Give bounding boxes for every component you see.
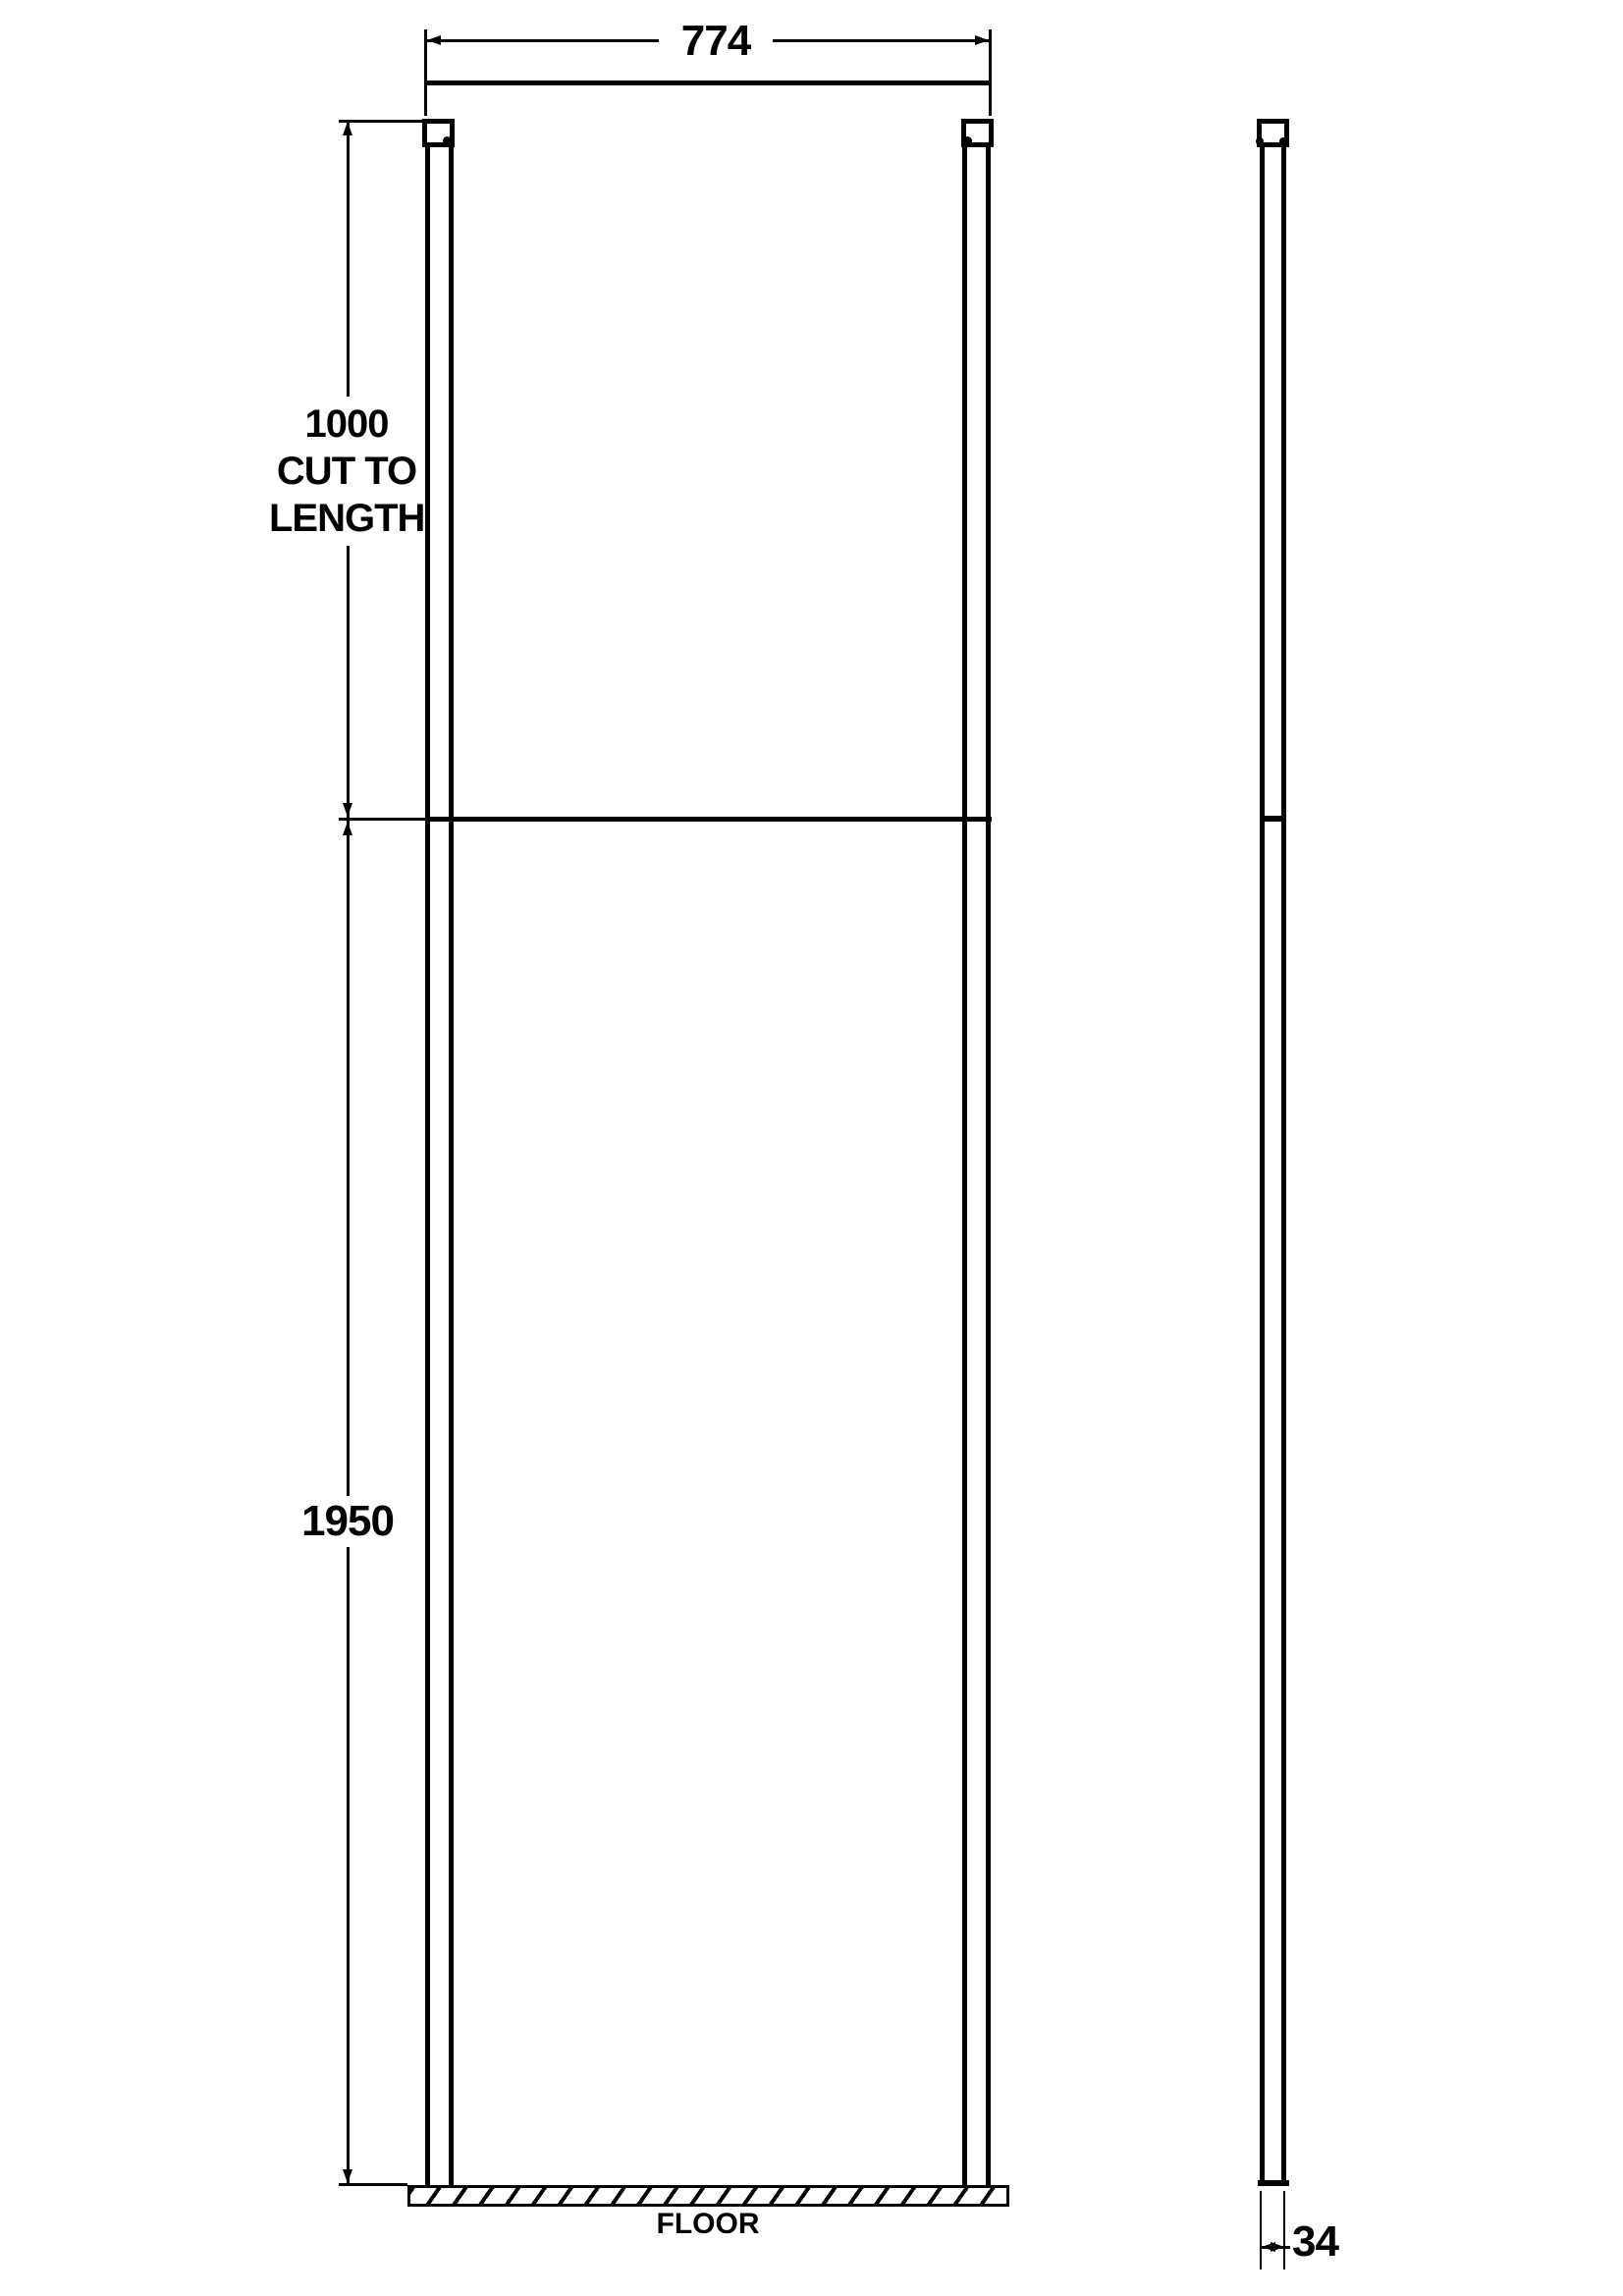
- technical-drawing: 774 FLOOR 1000 CUT TO LENGTH 1950: [0, 0, 1623, 2296]
- width-extension-line-left: [424, 29, 427, 116]
- post-dim-value: 1000: [269, 400, 424, 448]
- side-panel-front-edge: [1260, 147, 1265, 2180]
- height-dim-arrow-down-icon: [343, 2169, 352, 2183]
- floor-hatch: [407, 2185, 1009, 2207]
- thickness-extension-left: [1260, 2191, 1262, 2269]
- side-panel-back-edge: [1281, 147, 1286, 2180]
- side-glass-top-edge: [1260, 816, 1286, 822]
- side-bracket-screw-left-icon: [1256, 137, 1264, 145]
- left-bracket-screw-icon: [443, 136, 452, 145]
- glass-height-dimension-label: 1950: [293, 1496, 403, 1547]
- glass-panel: [430, 822, 986, 2185]
- ceiling-line: [425, 80, 991, 85]
- thickness-dimension-label: 34: [1292, 2220, 1371, 2264]
- post-dim-arrow-up-icon: [343, 122, 352, 135]
- side-bracket-screw-right-icon: [1279, 137, 1287, 145]
- post-dim-note-line2: LENGTH: [269, 495, 424, 542]
- dimension-arrow-left-icon: [427, 35, 441, 45]
- thickness-arrow-right-icon: [1271, 2242, 1284, 2252]
- shared-extension-glass-top: [339, 818, 425, 821]
- post-dimension-label: 1000 CUT TO LENGTH: [269, 397, 424, 546]
- side-panel-bottom-edge: [1258, 2180, 1289, 2186]
- glass-top-edge: [425, 817, 992, 822]
- right-bracket-screw-icon: [963, 136, 972, 145]
- height-dim-arrow-up-icon: [343, 822, 352, 835]
- thickness-extension-right: [1283, 2191, 1285, 2269]
- floor-label: FLOOR: [620, 2209, 796, 2240]
- width-dimension-label: 774: [659, 20, 773, 63]
- width-extension-line-right: [989, 29, 992, 116]
- dimension-arrow-right-icon: [975, 35, 989, 45]
- post-dim-note-line1: CUT TO: [269, 448, 424, 495]
- post-dim-arrow-down-icon: [343, 803, 352, 817]
- right-post-outer-edge: [986, 147, 991, 2185]
